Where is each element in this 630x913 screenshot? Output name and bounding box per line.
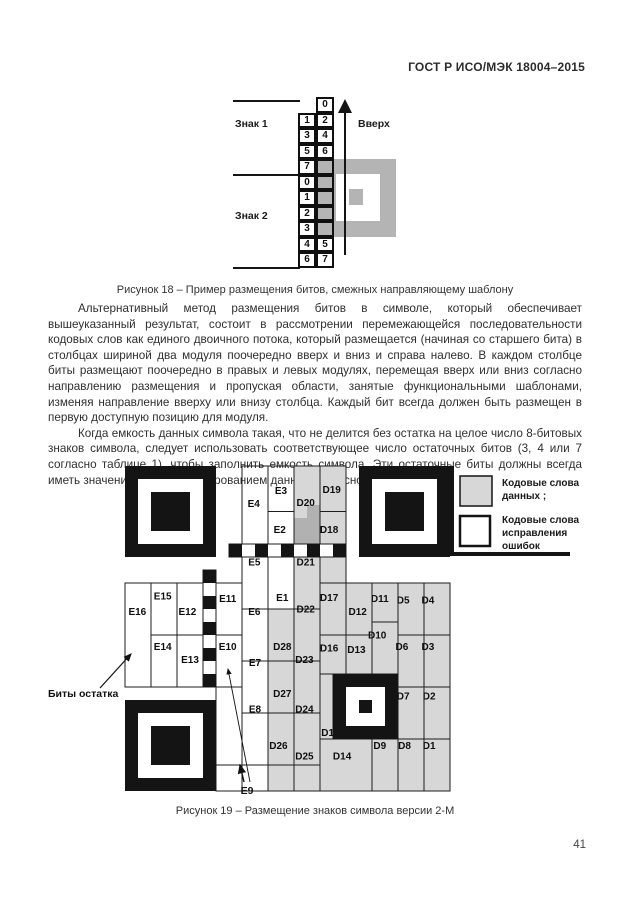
fig18-bit-cell: 0 bbox=[298, 175, 316, 191]
codeword-label-E10: E10 bbox=[219, 642, 237, 653]
codeword-label-D18: D18 bbox=[320, 525, 339, 536]
codeword-label-D13: D13 bbox=[347, 645, 366, 656]
character1-label: Знак 1 bbox=[235, 118, 268, 130]
character2-label: Знак 2 bbox=[235, 210, 268, 222]
fig18-bit-cell bbox=[316, 159, 334, 175]
legend-label: ошибок bbox=[502, 540, 541, 552]
codeword-label-D12: D12 bbox=[349, 607, 368, 618]
timing-pattern-vertical bbox=[203, 570, 216, 687]
codeword-label-D11: D11 bbox=[371, 594, 389, 605]
codeword-label-D2: D2 bbox=[423, 692, 436, 703]
codeword-cell-E11 bbox=[216, 583, 242, 635]
fig18-bit-cell: 1 bbox=[298, 190, 316, 206]
fig18-bit-cell: 0 bbox=[316, 97, 334, 113]
codeword-label-E16: E16 bbox=[128, 607, 146, 618]
legend-bracket bbox=[450, 466, 454, 556]
alignment-pattern bbox=[333, 674, 398, 739]
qr-layout-diagram: D1D2D3D4D5D6D7D8D9D10D11D12D13D14D15D16D… bbox=[40, 460, 590, 810]
divider-line bbox=[233, 267, 300, 269]
e9-annotation: E9 bbox=[228, 669, 254, 797]
figure-18: Знак 1 Знак 2 0123456701234567 Вверх bbox=[233, 92, 453, 284]
remainder-bits-arrow bbox=[100, 654, 131, 688]
codeword-label-E12: E12 bbox=[179, 607, 197, 618]
fig18-bit-cell bbox=[316, 206, 334, 222]
legend-swatch-data bbox=[460, 476, 492, 506]
fig18-bit-cell: 5 bbox=[316, 237, 334, 253]
fig18-bit-cell bbox=[316, 221, 334, 237]
codeword-label-D10: D10 bbox=[368, 631, 387, 642]
remainder-bits-annotation: Биты остатка bbox=[48, 654, 131, 700]
fig18-bit-cell: 7 bbox=[316, 252, 334, 268]
page-number: 41 bbox=[573, 839, 586, 851]
codeword-label-E1: E1 bbox=[276, 593, 289, 604]
codeword-cell-E16 bbox=[125, 583, 151, 687]
codeword-label-D3: D3 bbox=[422, 642, 435, 653]
finder-pattern-top-left bbox=[125, 466, 216, 557]
codeword-label-D9: D9 bbox=[373, 741, 386, 752]
codeword-label-E8: E8 bbox=[249, 705, 262, 716]
codeword-label-E13: E13 bbox=[181, 655, 199, 666]
codeword-label-D21: D21 bbox=[297, 558, 316, 569]
figure19-caption: Рисунок 19 – Размещение знаков символа в… bbox=[0, 805, 630, 817]
codeword-label-D27: D27 bbox=[273, 689, 292, 700]
codeword-label-E6: E6 bbox=[248, 607, 261, 618]
dark-shaded-modules bbox=[294, 518, 320, 544]
codeword-label-D8: D8 bbox=[398, 741, 411, 752]
codeword-cell bbox=[216, 765, 242, 791]
codeword-label-D23: D23 bbox=[295, 655, 314, 666]
legend-label: Кодовые слова bbox=[502, 478, 579, 489]
codeword-label-D25: D25 bbox=[295, 751, 314, 762]
codeword-cell-E8 bbox=[242, 713, 268, 765]
codeword-label-E7: E7 bbox=[249, 658, 262, 669]
e9-label: E9 bbox=[241, 785, 254, 797]
codeword-label-D5: D5 bbox=[397, 595, 410, 606]
finder-pattern-top-right bbox=[359, 466, 450, 557]
fig18-bit-cell: 3 bbox=[298, 221, 316, 237]
codeword-label-E14: E14 bbox=[154, 642, 172, 653]
fig18-bit-cell: 7 bbox=[298, 159, 316, 175]
codeword-label-E2: E2 bbox=[274, 525, 287, 536]
fig18-bit-cell bbox=[316, 190, 334, 206]
legend-label: данных ; bbox=[502, 491, 546, 502]
divider-line bbox=[233, 100, 300, 102]
codeword-label-D16: D16 bbox=[320, 644, 339, 655]
paragraph: Альтернативный метод размещения битов в … bbox=[48, 301, 582, 426]
codeword-label-D6: D6 bbox=[396, 642, 409, 653]
timing-pattern-horizontal bbox=[229, 544, 346, 557]
codeword-cell bbox=[216, 687, 242, 765]
codeword-label-D7: D7 bbox=[397, 692, 410, 703]
codeword-label-D17: D17 bbox=[320, 593, 339, 604]
legend-label: исправления bbox=[502, 528, 567, 539]
codeword-label-D28: D28 bbox=[273, 642, 292, 653]
codeword-label-D14: D14 bbox=[333, 751, 352, 762]
figure18-caption: Рисунок 18 – Пример размещения битов, см… bbox=[0, 284, 630, 296]
remainder-bits-label: Биты остатка bbox=[48, 688, 119, 700]
codeword-label-E4: E4 bbox=[248, 499, 261, 510]
up-arrow-head bbox=[338, 99, 352, 113]
up-label: Вверх bbox=[358, 118, 390, 130]
fig18-bit-cell bbox=[316, 175, 334, 191]
codeword-label-E5: E5 bbox=[248, 558, 261, 569]
codeword-label-D19: D19 bbox=[323, 485, 342, 496]
fig18-bit-cell: 2 bbox=[316, 113, 334, 129]
codeword-label-E3: E3 bbox=[275, 486, 288, 497]
codeword-label-E15: E15 bbox=[154, 592, 172, 603]
codeword-label-E11: E11 bbox=[219, 594, 237, 605]
fig18-bit-cell: 4 bbox=[298, 237, 316, 253]
alignment-pattern-core bbox=[349, 189, 363, 205]
codeword-label-D1: D1 bbox=[423, 741, 436, 752]
codeword-label-D26: D26 bbox=[269, 741, 288, 752]
fig18-bit-cell: 2 bbox=[298, 206, 316, 222]
codeword-label-D22: D22 bbox=[297, 605, 316, 616]
codeword-label-D20: D20 bbox=[297, 498, 316, 509]
fig18-bit-cell: 4 bbox=[316, 128, 334, 144]
up-arrow bbox=[344, 112, 346, 255]
legend-bracket bbox=[450, 552, 570, 556]
fig18-bit-cell: 3 bbox=[298, 128, 316, 144]
divider-line bbox=[233, 174, 300, 176]
legend-swatch-ec bbox=[460, 516, 490, 546]
fig18-bit-cell: 6 bbox=[298, 252, 316, 268]
fig18-bit-cell: 5 bbox=[298, 144, 316, 160]
codeword-label-D24: D24 bbox=[295, 705, 314, 716]
legend: Кодовые слова данных ; Кодовые слова исп… bbox=[450, 466, 579, 556]
legend-label: Кодовые слова bbox=[502, 515, 579, 526]
codeword-label-D4: D4 bbox=[422, 595, 435, 606]
document-page: ГОСТ Р ИСО/МЭК 18004–2015 Знак 1 Знак 2 … bbox=[0, 0, 630, 913]
finder-pattern-bottom-left bbox=[125, 700, 216, 791]
page-header: ГОСТ Р ИСО/МЭК 18004–2015 bbox=[408, 60, 585, 74]
fig18-bit-cell: 1 bbox=[298, 113, 316, 129]
figure-19: D1D2D3D4D5D6D7D8D9D10D11D12D13D14D15D16D… bbox=[40, 460, 590, 810]
fig18-bit-cell: 6 bbox=[316, 144, 334, 160]
